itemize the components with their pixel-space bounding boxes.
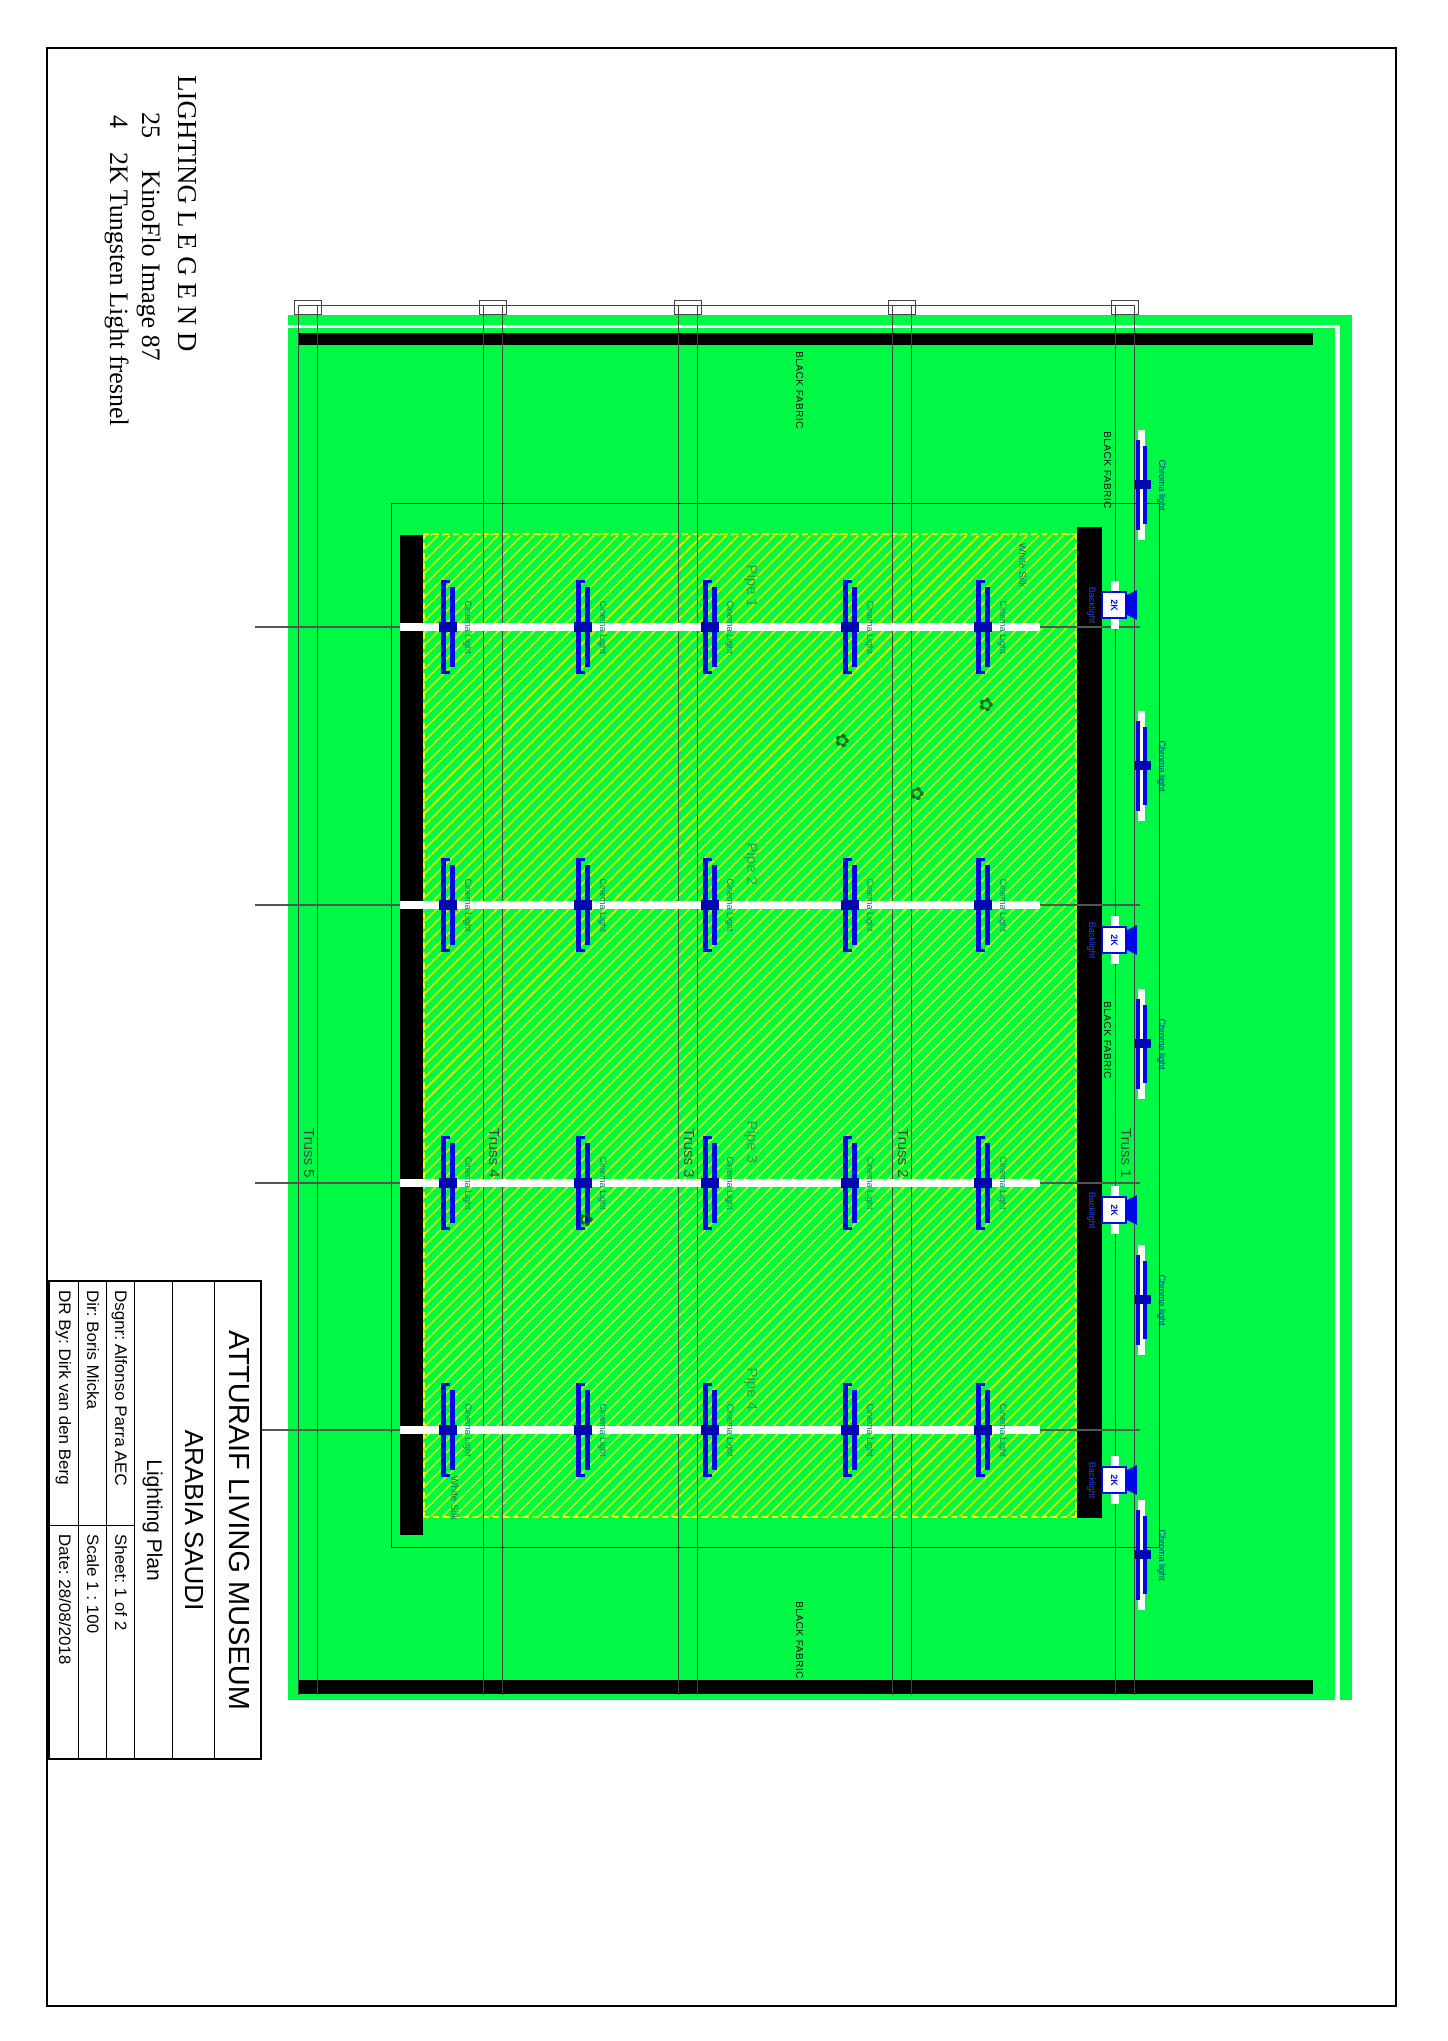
truss <box>892 305 912 1695</box>
chroma-fixture <box>1132 999 1150 1093</box>
project-location: ARABIA SAUDI <box>172 1282 214 1758</box>
kinoflo-fixture <box>439 580 457 674</box>
kinoflo-fixture <box>974 580 992 674</box>
kinoflo-fixture-label: Cinema Light <box>998 1138 1008 1228</box>
kinoflo-fixture-label: Cinema Light <box>598 582 608 672</box>
truss-label: Truss 3 <box>680 1128 697 1177</box>
black-fabric-label: BLACK FABRIC <box>793 330 804 450</box>
white-silk-label: White Silk <box>448 1453 459 1543</box>
chroma-fixture <box>1132 1255 1150 1349</box>
kinoflo-fixture <box>574 580 592 674</box>
fresnel-hood <box>1127 1195 1137 1225</box>
green-edge-strip-left <box>288 315 1352 325</box>
pipe-white-band <box>400 1179 1040 1187</box>
kinoflo-fixture-label: Cinema Light <box>463 860 473 950</box>
fixture-clamp <box>1135 480 1151 489</box>
fixture-end-cap <box>976 1136 985 1139</box>
kinoflo-fixture-label: Cinema Light <box>463 1138 473 1228</box>
fixture-end-cap <box>441 1227 450 1230</box>
chroma-fixture-label: Chroma light <box>1157 440 1167 530</box>
fresnel-hood <box>1127 590 1137 620</box>
chroma-fixture-label: Chroma light <box>1157 721 1167 811</box>
kinoflo-fixture-label: Cinema Light <box>725 1385 735 1475</box>
fixture-clamp <box>574 1425 592 1435</box>
director-field: Dir: Boris Micka <box>79 1282 106 1526</box>
screenshot-root: { "legend": { "title": "LIGHTING L E G E… <box>0 0 1448 2041</box>
kinoflo-fixture-label: Cinema Light <box>463 1385 473 1475</box>
kinoflo-fixture <box>701 1136 719 1230</box>
drawn-by-field: DR By: Dirk van den Berg <box>50 1282 78 1526</box>
fixture-end-cap <box>576 858 585 861</box>
kinoflo-fixture-label: Cinema Light <box>865 1138 875 1228</box>
truss-end-cap <box>294 300 322 315</box>
backlight-label: Backlight <box>1087 575 1097 635</box>
fixture-clamp <box>439 1425 457 1435</box>
kinoflo-fixture <box>574 858 592 952</box>
chroma-fixture-label: Chroma light <box>1157 1510 1167 1600</box>
fixture-end-cap <box>703 858 712 861</box>
designer-field: Dsgnr: Alfonso Parra AEC <box>107 1282 134 1526</box>
fixture-end-cap <box>576 671 585 674</box>
fresnel-hood <box>1127 925 1137 955</box>
fixture-end-cap <box>976 858 985 861</box>
fixture-clamp <box>439 900 457 910</box>
pipe-label: Pipe 3 <box>743 1078 760 1163</box>
chroma-fixture-label: Chroma light <box>1157 999 1167 1089</box>
chroma-fixture-label: Chroma light <box>1157 1255 1167 1345</box>
title-block-row: Dsgnr: Alfonso Parra AEC Sheet: 1 of 2 <box>106 1282 134 1758</box>
fixture-clamp <box>974 1425 992 1435</box>
kinoflo-fixture-label: Cinema Light <box>725 582 735 672</box>
cloud-doodle: ✿ <box>575 1212 596 1227</box>
sheet-field: Sheet: 1 of 2 <box>107 1526 134 1758</box>
fixture-clamp <box>1135 761 1151 770</box>
kinoflo-fixture-label: Cinema Light <box>998 860 1008 950</box>
fixture-end-cap <box>441 949 450 952</box>
fixture-clamp <box>1135 1295 1151 1304</box>
kinoflo-fixture <box>701 858 719 952</box>
kinoflo-fixture <box>439 858 457 952</box>
kinoflo-fixture-label: Cinema Light <box>598 1385 608 1475</box>
truss-label: Truss 5 <box>300 1128 317 1177</box>
kinoflo-fixture-label: Cinema Light <box>725 860 735 950</box>
kinoflo-fixture-label: Cinema Light <box>865 582 875 672</box>
fixture-end-cap <box>576 580 585 583</box>
fixture-end-cap <box>843 1227 852 1230</box>
legend-item-qty: 4 <box>103 115 133 128</box>
fixture-end-cap <box>576 1474 585 1477</box>
pipe-label: Pipe 1 <box>743 522 760 607</box>
green-edge-strip-top <box>1340 315 1352 1700</box>
drawing-sheet: Truss 1Truss 2Truss 3Truss 4Truss 5 Pipe… <box>0 0 1448 2041</box>
fresnel-fixture: 2K <box>1101 926 1127 954</box>
kinoflo-fixture-label: Cinema Light <box>865 860 875 950</box>
backlight-label: Backlight <box>1087 910 1097 970</box>
cloud-doodle: ✿ <box>975 697 996 712</box>
fixture-clamp <box>701 1178 719 1188</box>
pipe-white-band <box>400 623 1040 631</box>
fixture-end-cap <box>576 1383 585 1386</box>
fixture-clamp <box>701 900 719 910</box>
fresnel-fixture: 2K <box>1101 591 1127 619</box>
black-fabric-label: BLACK FABRIC <box>1101 980 1112 1100</box>
kinoflo-fixture-label: Cinema Light <box>725 1138 735 1228</box>
fixture-clamp <box>841 1425 859 1435</box>
legend-item-qty: 25 <box>135 112 165 138</box>
truss-label: Truss 4 <box>485 1128 502 1177</box>
fixture-end-cap <box>441 671 450 674</box>
truss <box>298 305 318 1695</box>
fixture-end-cap <box>976 1227 985 1230</box>
fresnel-fixture: 2K <box>1101 1196 1127 1224</box>
black-fabric-bar-left <box>298 333 1313 345</box>
fixture-clamp <box>974 622 992 632</box>
kinoflo-fixture-label: Cinema Light <box>998 1385 1008 1475</box>
kinoflo-fixture-label: Cinema Light <box>598 860 608 950</box>
fixture-end-cap <box>441 1136 450 1139</box>
fixture-clamp <box>1135 1550 1151 1559</box>
fixture-end-cap <box>576 949 585 952</box>
fixture-end-cap <box>976 949 985 952</box>
pipe-white-band <box>400 1426 1040 1434</box>
fixture-end-cap <box>576 1136 585 1139</box>
fixture-end-cap <box>843 1474 852 1477</box>
fixture-end-cap <box>703 949 712 952</box>
fixture-end-cap <box>976 671 985 674</box>
fixture-clamp <box>574 1178 592 1188</box>
legend-item-desc: KinoFlo Image 87 <box>135 170 165 361</box>
kinoflo-fixture-label: Cinema Light <box>463 582 473 672</box>
chroma-fixture <box>1132 440 1150 534</box>
fixture-end-cap <box>441 1383 450 1386</box>
fixture-end-cap <box>843 858 852 861</box>
kinoflo-fixture <box>574 1383 592 1477</box>
black-fabric-bar-right <box>298 1680 1313 1694</box>
fixture-clamp <box>701 622 719 632</box>
cloud-doodle: ✿ <box>831 733 852 748</box>
truss-end-cap <box>888 300 916 315</box>
fixture-end-cap <box>976 1383 985 1386</box>
kinoflo-fixture <box>841 1136 859 1230</box>
kinoflo-fixture <box>701 1383 719 1477</box>
fixture-clamp <box>974 900 992 910</box>
fixture-clamp <box>439 1178 457 1188</box>
black-fabric-bar-top <box>1077 527 1102 1518</box>
kinoflo-fixture-label: Cinema Light <box>998 582 1008 672</box>
fixture-clamp <box>574 622 592 632</box>
fixture-end-cap <box>441 858 450 861</box>
pipe-label: Pipe 4 <box>743 1325 760 1410</box>
fixture-end-cap <box>843 949 852 952</box>
fixture-end-cap <box>703 671 712 674</box>
backlight-label: Backlight <box>1087 1180 1097 1240</box>
truss-label: Truss 1 <box>1117 1128 1134 1177</box>
kinoflo-fixture <box>974 858 992 952</box>
truss-end-cap <box>479 300 507 315</box>
fixture-end-cap <box>843 671 852 674</box>
fixture-clamp <box>841 900 859 910</box>
truss-label: Truss 2 <box>894 1128 911 1177</box>
fixture-clamp <box>439 622 457 632</box>
black-fabric-bar-bottom <box>400 535 423 1535</box>
kinoflo-fixture <box>701 580 719 674</box>
truss-end-connector-line <box>298 305 1135 306</box>
fixture-clamp <box>701 1425 719 1435</box>
cloud-doodle: ✿ <box>906 786 927 801</box>
fixture-end-cap <box>576 1227 585 1230</box>
kinoflo-fixture <box>841 1383 859 1477</box>
fixture-end-cap <box>976 1474 985 1477</box>
fixture-clamp <box>1135 1039 1151 1048</box>
black-fabric-label: BLACK FABRIC <box>1101 410 1112 530</box>
fixture-clamp <box>841 1178 859 1188</box>
fixture-clamp <box>974 1178 992 1188</box>
fresnel-hood <box>1127 1465 1137 1495</box>
fixture-end-cap <box>843 580 852 583</box>
chroma-fixture <box>1132 721 1150 815</box>
kinoflo-fixture <box>974 1383 992 1477</box>
scale-field: Scale 1 : 100 <box>79 1526 106 1758</box>
kinoflo-fixture <box>439 1136 457 1230</box>
fixture-end-cap <box>976 580 985 583</box>
truss-end-cap <box>1111 300 1139 315</box>
fixture-end-cap <box>843 1383 852 1386</box>
chroma-fixture <box>1132 1510 1150 1604</box>
drawing-title: Lighting Plan <box>134 1282 172 1758</box>
kinoflo-fixture-label: Cinema Light <box>865 1385 875 1475</box>
kinoflo-fixture <box>841 858 859 952</box>
fixture-end-cap <box>703 1474 712 1477</box>
white-silk-label: White Silk <box>1016 520 1027 610</box>
backlight-label: Backlight <box>1087 1450 1097 1510</box>
truss <box>678 305 698 1695</box>
truss <box>483 305 503 1695</box>
legend-item-desc: 2K Tungsten Light fresnel <box>103 152 133 426</box>
legend-title: LIGHTING L E G E N D <box>171 75 202 351</box>
fixture-end-cap <box>703 1383 712 1386</box>
fixture-clamp <box>574 900 592 910</box>
fixture-end-cap <box>441 580 450 583</box>
project-title: ATTURAIF LIVING MUSEUM <box>214 1282 260 1758</box>
fixture-end-cap <box>703 1227 712 1230</box>
fresnel-fixture: 2K <box>1101 1466 1127 1494</box>
truss-end-cap <box>674 300 702 315</box>
fixture-clamp <box>841 622 859 632</box>
fixture-end-cap <box>703 580 712 583</box>
black-fabric-label: BLACK FABRIC <box>793 1580 804 1700</box>
title-block-row: Dir: Boris Micka Scale 1 : 100 <box>78 1282 106 1758</box>
kinoflo-fixture-label: Cinema Light <box>598 1138 608 1228</box>
pipe-label: Pipe 2 <box>743 800 760 885</box>
date-field: Date: 28/08/2018 <box>50 1526 78 1758</box>
fixture-end-cap <box>843 1136 852 1139</box>
kinoflo-fixture <box>974 1136 992 1230</box>
title-block: ATTURAIF LIVING MUSEUM ARABIA SAUDI Ligh… <box>48 1280 262 1760</box>
kinoflo-fixture <box>841 580 859 674</box>
title-block-row: DR By: Dirk van den Berg Date: 28/08/201… <box>50 1282 78 1758</box>
pipe-white-band <box>400 901 1040 909</box>
fixture-end-cap <box>703 1136 712 1139</box>
